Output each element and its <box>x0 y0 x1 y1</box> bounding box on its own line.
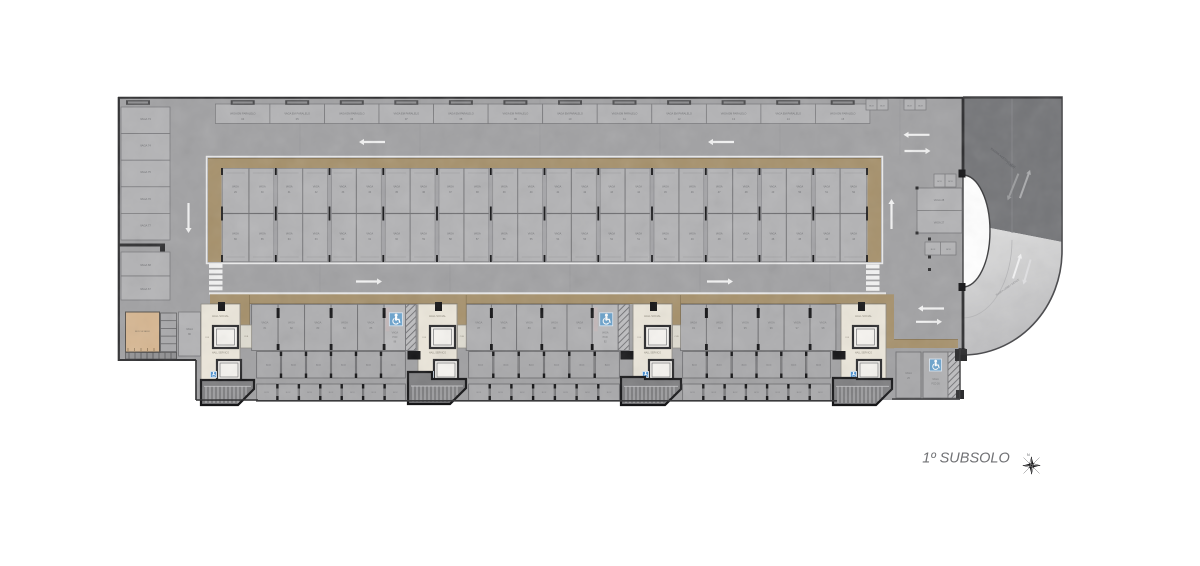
svg-text:N: N <box>1027 453 1030 457</box>
svg-text:1º SUBSOLO: 1º SUBSOLO <box>922 451 1010 467</box>
